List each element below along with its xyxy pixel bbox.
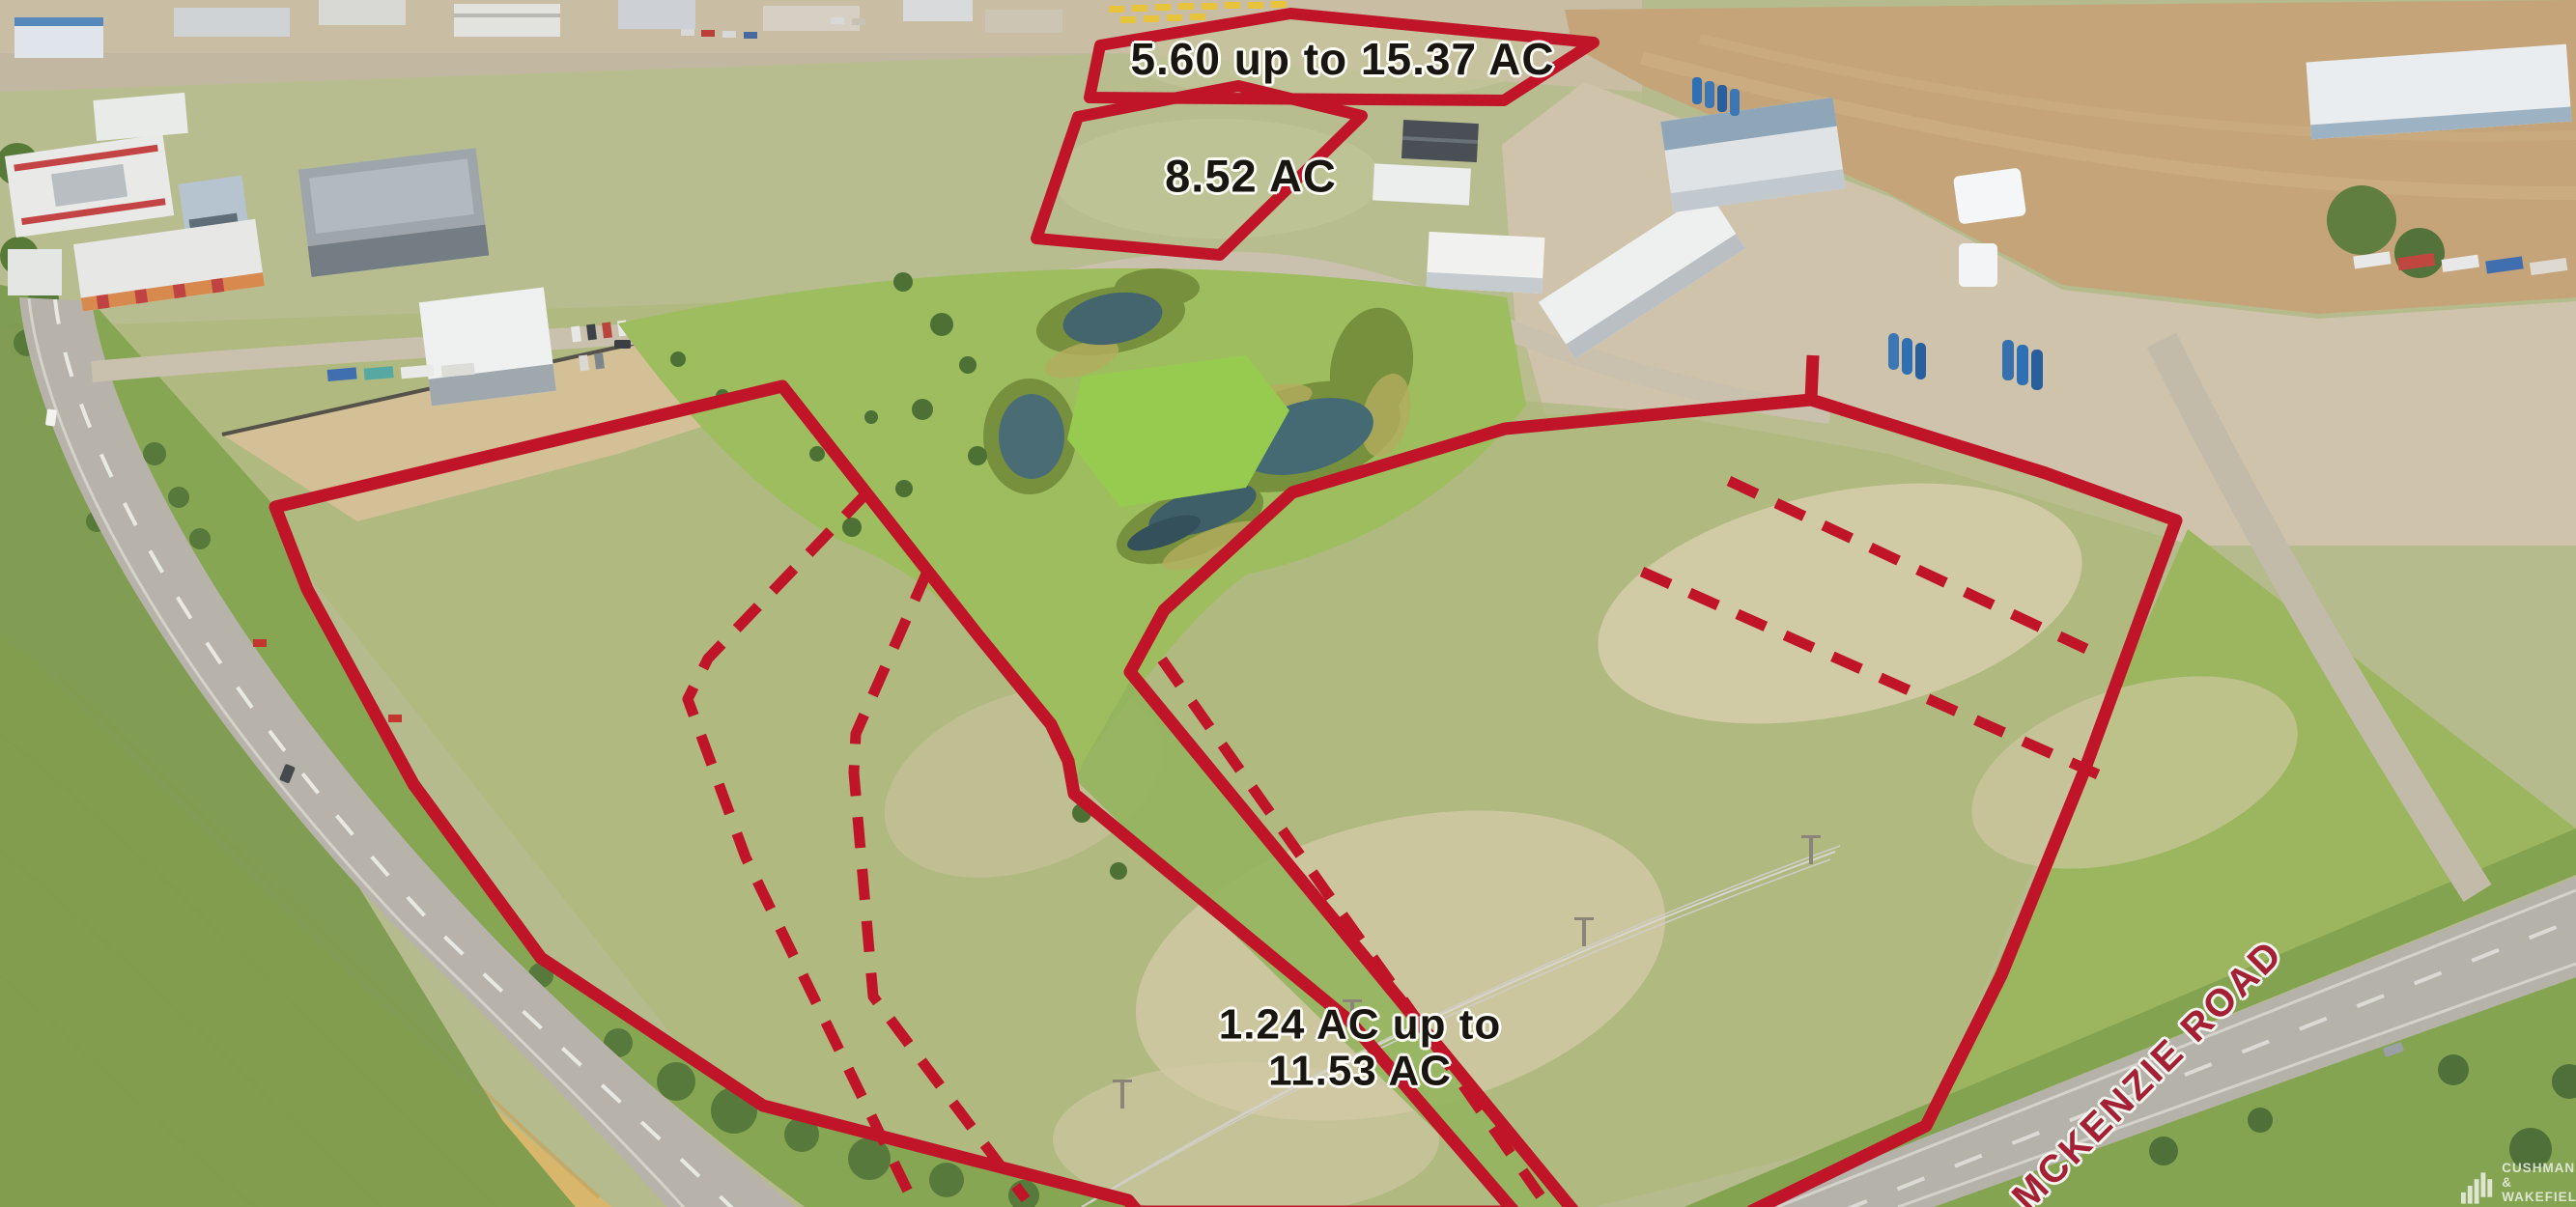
aerial-site-map: 5.60 up to 15.37 AC 8.52 AC 1.24 AC up t…	[0, 0, 2576, 1207]
roadside-sign	[253, 639, 267, 647]
white-tent	[1953, 167, 2026, 224]
parcel-label-main-line2: 11.53 AC	[1268, 1048, 1452, 1095]
roadside-sign	[388, 715, 402, 722]
parcel-label-main: 1.24 AC up to 11.53 AC	[1219, 1002, 1502, 1096]
white-shed	[419, 287, 556, 406]
parcel-label-main-line1: 1.24 AC up to	[1219, 1001, 1502, 1049]
parcel-label-top: 5.60 up to 15.37 AC	[1130, 33, 1554, 85]
brand-logo-text: CUSHMAN & WAKEFIELD	[2502, 1161, 2576, 1204]
brand-logo-line2: WAKEFIELD	[2502, 1190, 2576, 1204]
white-tent	[1959, 243, 1997, 287]
brand-logo: CUSHMAN & WAKEFIELD	[2461, 1161, 2576, 1204]
brand-logo-line1: CUSHMAN &	[2502, 1161, 2576, 1190]
tree-clump	[2327, 185, 2396, 255]
gray-warehouse	[298, 148, 489, 277]
cushman-wakefield-logo-icon	[2461, 1169, 2493, 1204]
parcel-label-middle: 8.52 AC	[1165, 150, 1337, 203]
